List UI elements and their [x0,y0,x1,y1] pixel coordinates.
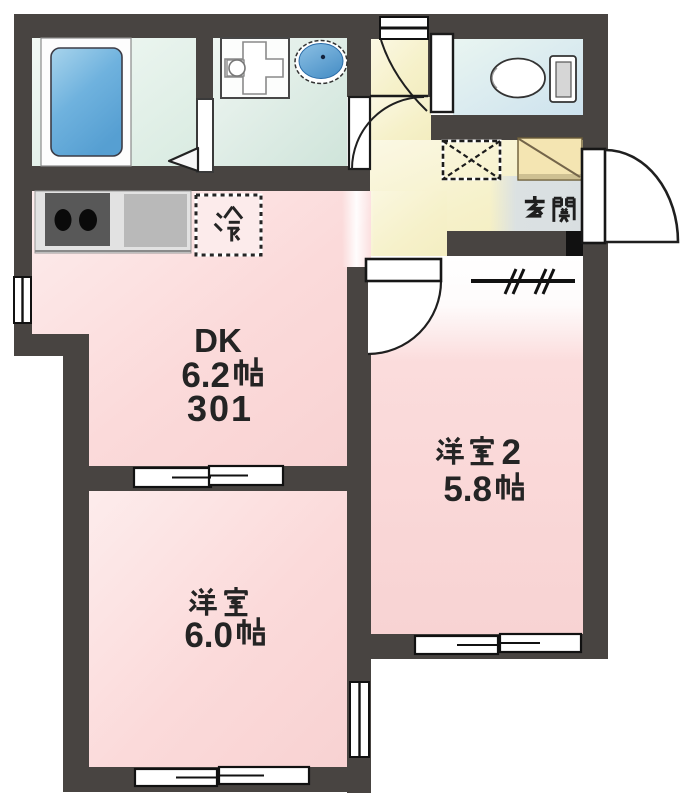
svg-text:5.8: 5.8 [443,470,492,509]
svg-text:301: 301 [187,388,253,429]
svg-text:2: 2 [502,433,521,472]
svg-text:DK: DK [194,322,242,359]
svg-text:6.0: 6.0 [184,616,233,655]
